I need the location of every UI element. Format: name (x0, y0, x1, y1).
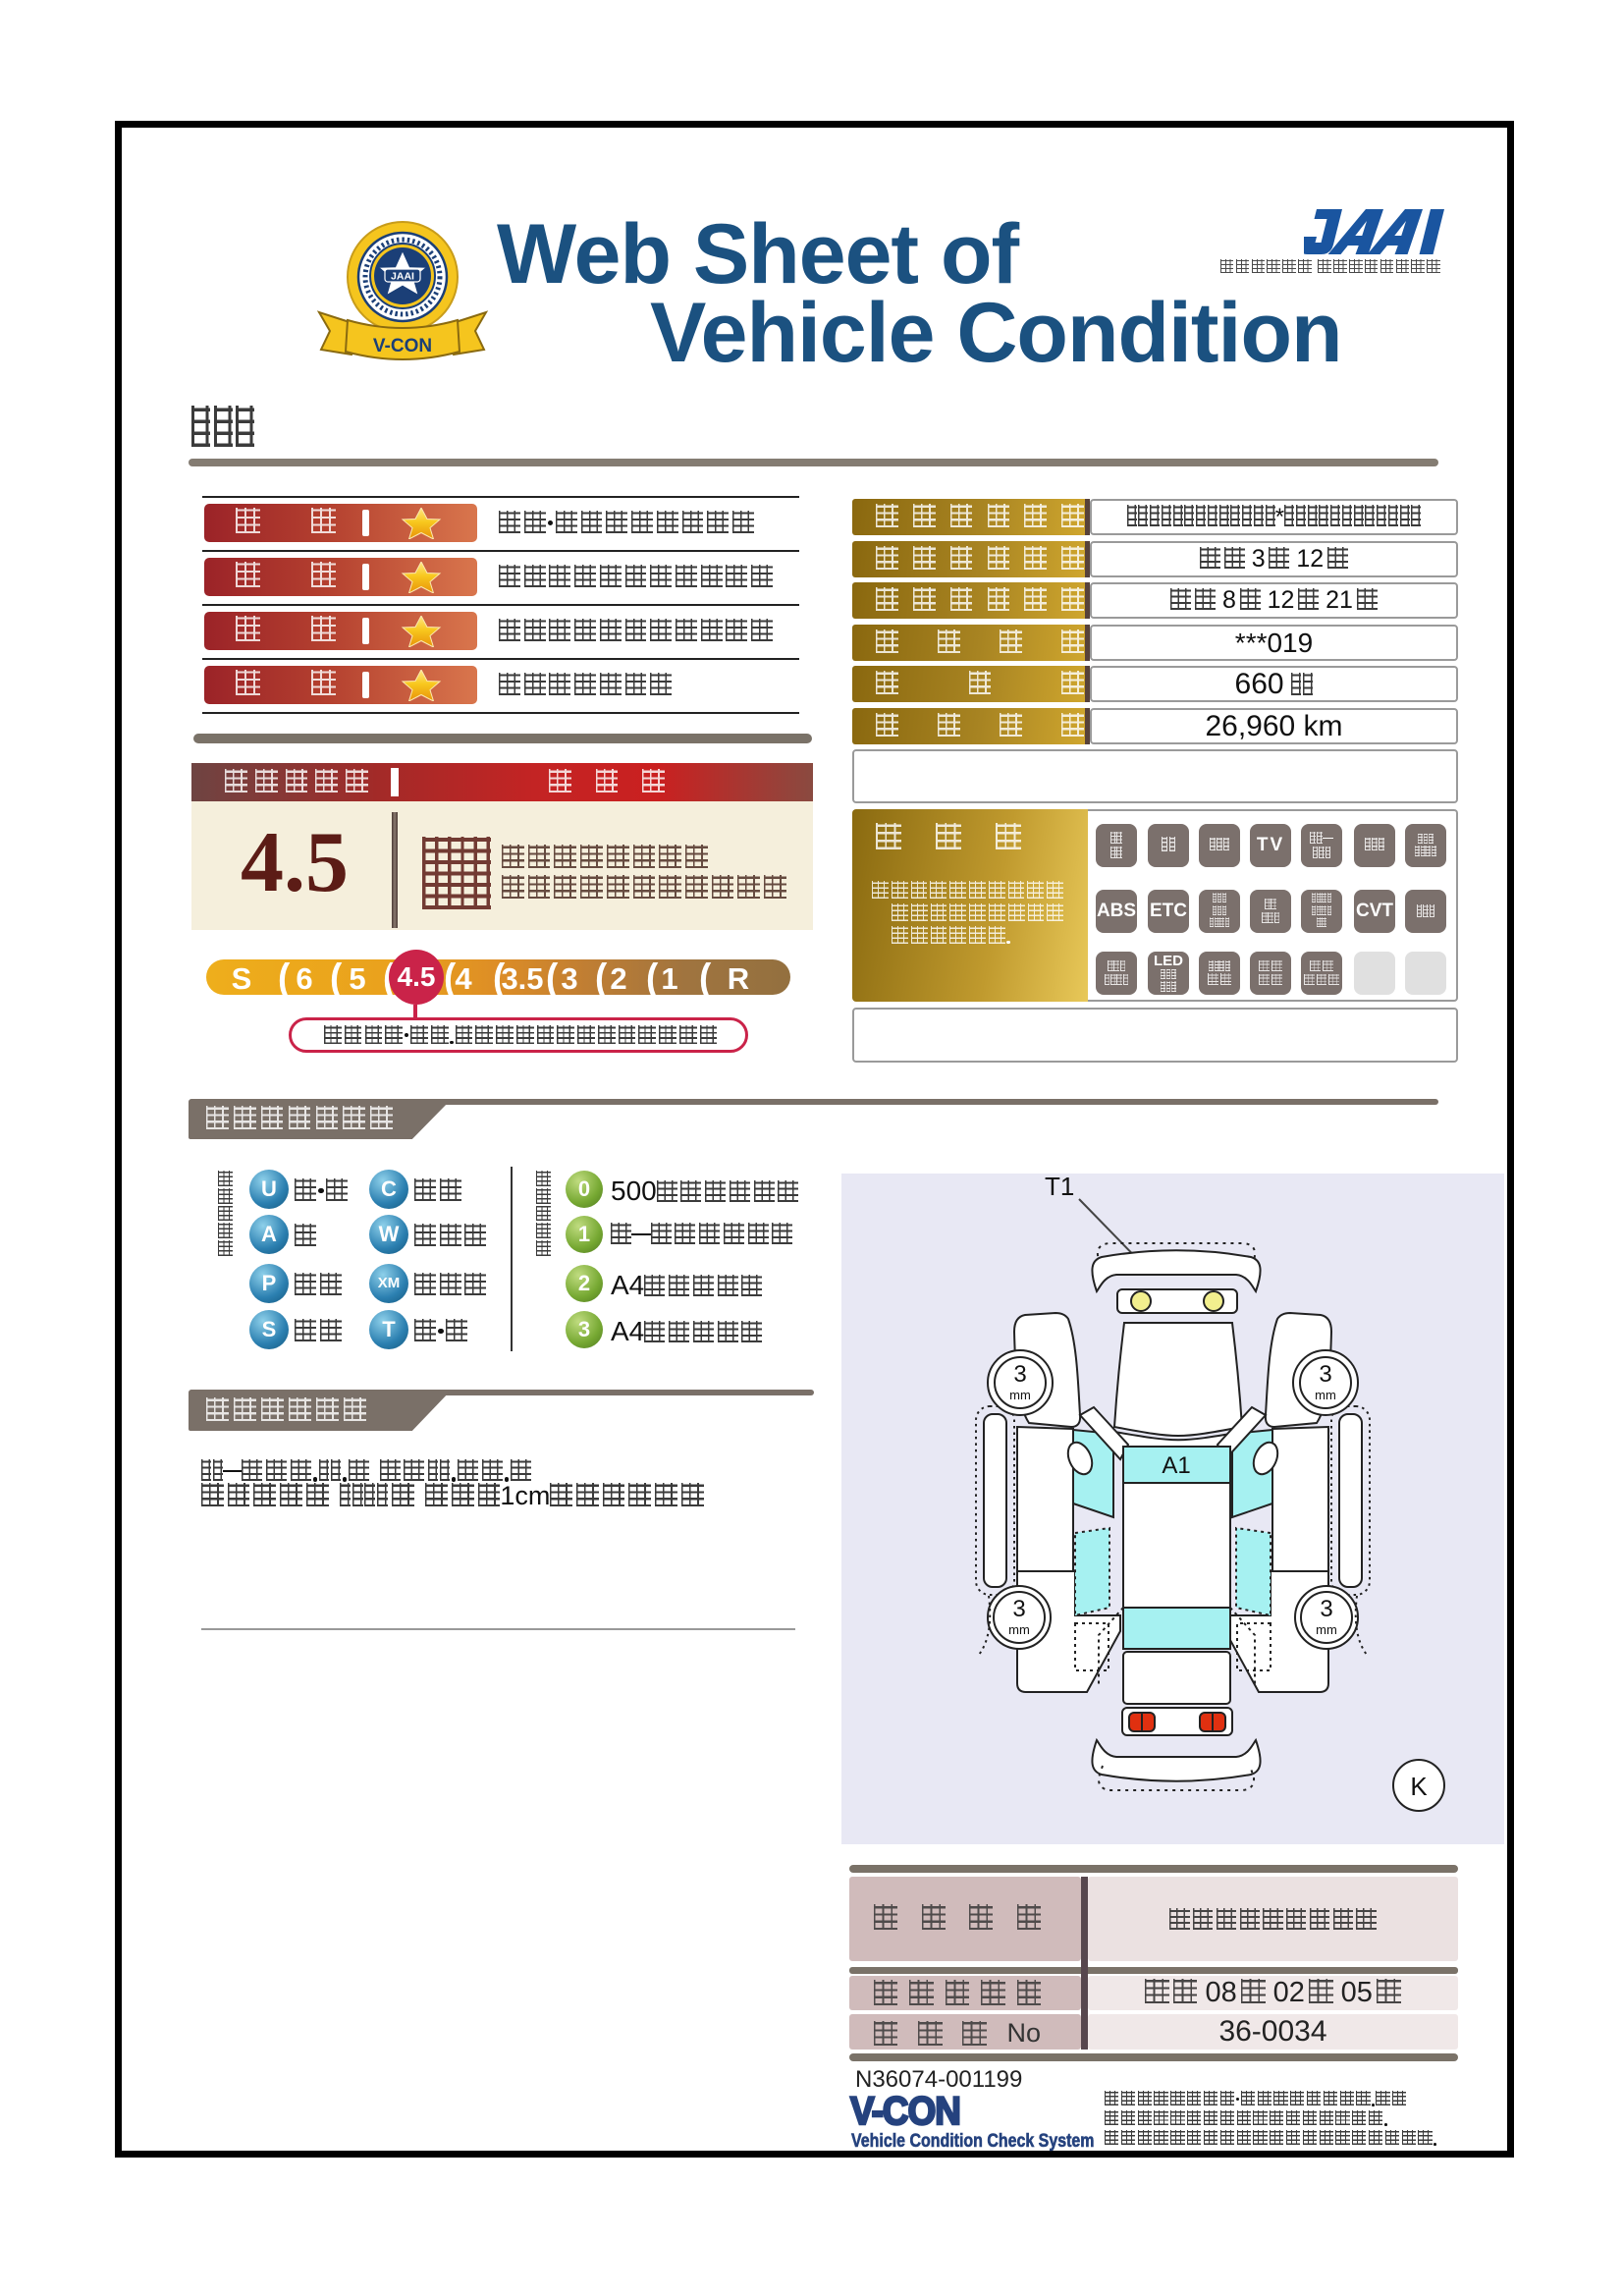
svg-text:mm: mm (1315, 1388, 1336, 1402)
svg-text:mm: mm (1008, 1622, 1030, 1637)
svg-text:3: 3 (1319, 1361, 1331, 1388)
svg-text:T1: T1 (1045, 1174, 1074, 1201)
svg-text:K: K (1410, 1772, 1428, 1801)
svg-text:3: 3 (1320, 1596, 1332, 1622)
svg-text:V-CON: V-CON (373, 336, 432, 356)
svg-text:A1: A1 (1162, 1452, 1190, 1479)
svg-text:3: 3 (1012, 1596, 1025, 1622)
svg-text:3: 3 (1013, 1361, 1026, 1388)
svg-text:mm: mm (1316, 1622, 1337, 1637)
svg-text:mm: mm (1009, 1388, 1031, 1402)
svg-text:JAAI: JAAI (391, 271, 414, 283)
